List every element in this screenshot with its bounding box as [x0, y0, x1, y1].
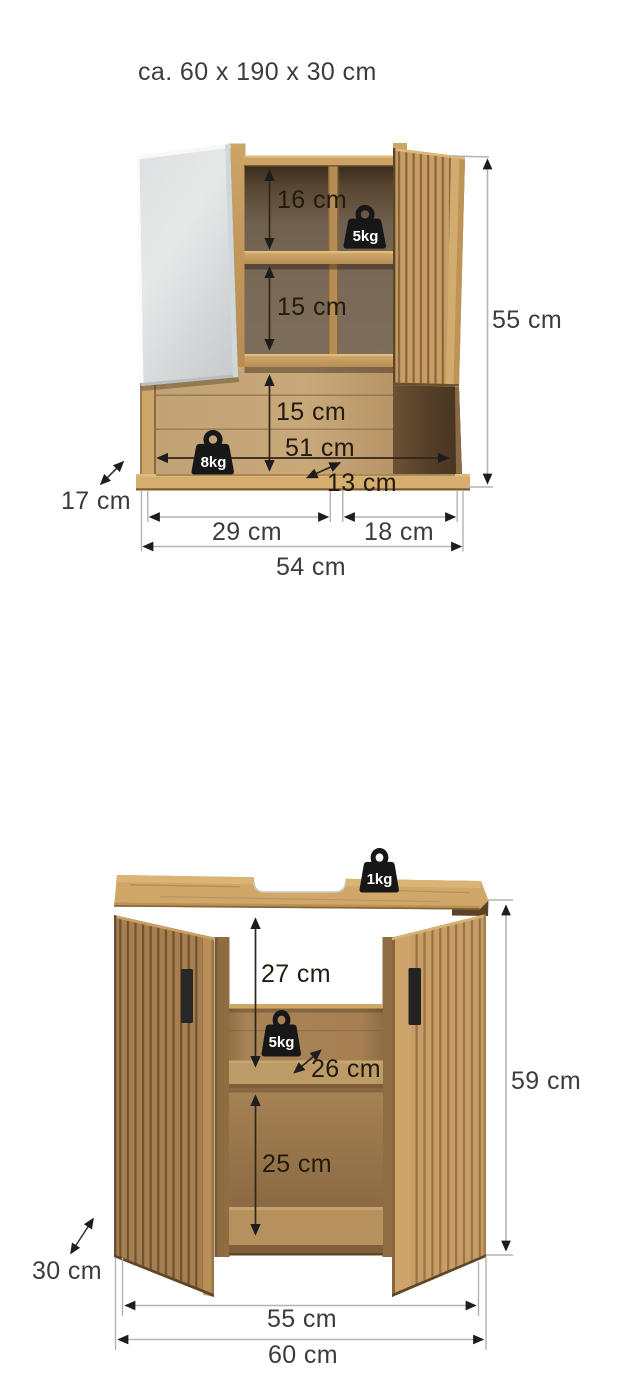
svg-text:54 cm: 54 cm [276, 553, 346, 581]
svg-text:29 cm: 29 cm [212, 518, 282, 546]
svg-text:51 cm: 51 cm [285, 434, 355, 462]
svg-text:15 cm: 15 cm [276, 398, 346, 426]
svg-text:27 cm: 27 cm [261, 960, 331, 988]
svg-text:60 cm: 60 cm [268, 1341, 338, 1369]
svg-text:17 cm: 17 cm [61, 487, 131, 515]
svg-text:25 cm: 25 cm [262, 1150, 332, 1178]
svg-text:5kg: 5kg [353, 228, 379, 245]
svg-text:55 cm: 55 cm [492, 306, 562, 334]
svg-text:15 cm: 15 cm [277, 293, 347, 321]
svg-text:16 cm: 16 cm [277, 186, 347, 214]
svg-text:59 cm: 59 cm [511, 1067, 581, 1095]
svg-text:1kg: 1kg [367, 871, 393, 888]
svg-text:26 cm: 26 cm [311, 1055, 381, 1083]
svg-text:13 cm: 13 cm [327, 469, 397, 497]
svg-text:5kg: 5kg [269, 1034, 295, 1051]
svg-text:8kg: 8kg [201, 454, 227, 471]
svg-text:ca. 60 x 190 x 30 cm: ca. 60 x 190 x 30 cm [138, 58, 377, 86]
svg-text:55 cm: 55 cm [267, 1305, 337, 1333]
svg-text:18 cm: 18 cm [364, 518, 434, 546]
svg-text:30 cm: 30 cm [32, 1257, 102, 1285]
